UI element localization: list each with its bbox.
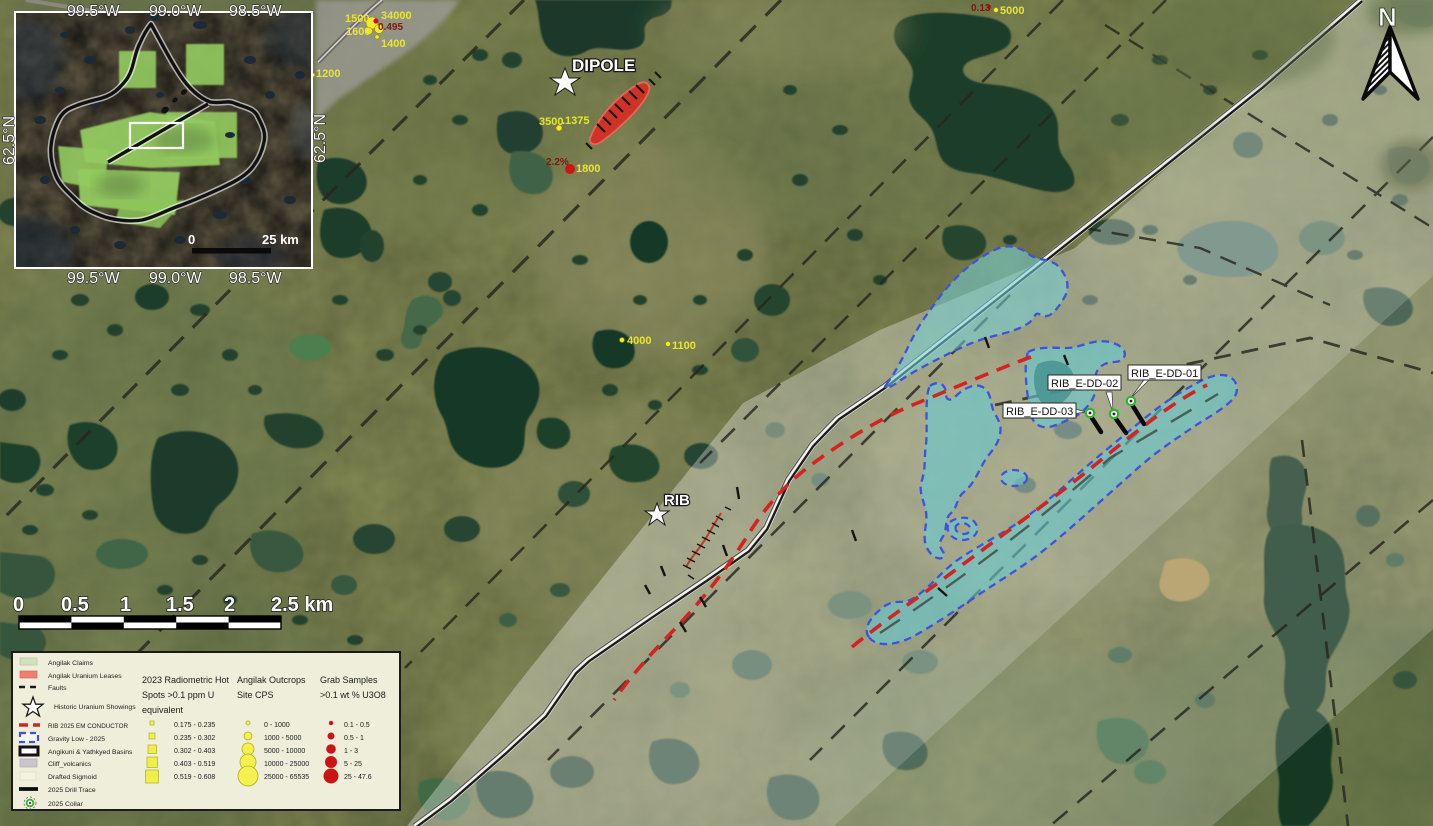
svg-text:Angilak Uranium Leases: Angilak Uranium Leases (48, 673, 122, 680)
svg-text:5 - 25: 5 - 25 (344, 761, 362, 768)
svg-text:2.5 km: 2.5 km (271, 594, 333, 616)
svg-text:2025 Drill Trace: 2025 Drill Trace (48, 787, 96, 794)
svg-text:Drafted Sigmoid: Drafted Sigmoid (48, 774, 97, 781)
svg-text:RIB: RIB (664, 492, 690, 509)
svg-text:98.5°W: 98.5°W (229, 3, 283, 20)
svg-text:Historic Uranium Showings: Historic Uranium Showings (54, 704, 136, 711)
svg-text:>0.1 wt % U3O8: >0.1 wt % U3O8 (320, 690, 386, 700)
svg-text:1400: 1400 (381, 38, 405, 50)
svg-text:N: N (1378, 2, 1397, 32)
svg-text:0.5: 0.5 (61, 594, 89, 616)
svg-text:0.175 - 0.235: 0.175 - 0.235 (174, 722, 215, 729)
svg-text:98.5°W: 98.5°W (229, 270, 283, 287)
svg-text:RIB_E-DD-02: RIB_E-DD-02 (1051, 378, 1118, 390)
svg-text:62.5°N: 62.5°N (1, 116, 18, 165)
svg-text:99.5°W: 99.5°W (67, 270, 121, 287)
svg-text:0.519 - 0.608: 0.519 - 0.608 (174, 774, 215, 781)
svg-text:Angilak Outcrops: Angilak Outcrops (237, 675, 306, 685)
svg-text:99.5°W: 99.5°W (67, 3, 121, 20)
svg-text:25000 - 65535: 25000 - 65535 (264, 774, 309, 781)
svg-text:0.302 - 0.403: 0.302 - 0.403 (174, 748, 215, 755)
svg-text:2025 Collar: 2025 Collar (48, 801, 83, 808)
svg-text:0: 0 (13, 594, 24, 616)
svg-text:5000: 5000 (1000, 5, 1024, 17)
svg-text:62.5°N: 62.5°N (312, 114, 329, 163)
svg-text:DIPOLE: DIPOLE (572, 56, 635, 75)
svg-text:Site CPS: Site CPS (237, 690, 274, 700)
svg-text:RIB 2025 EM CONDUCTOR: RIB 2025 EM CONDUCTOR (48, 723, 128, 730)
svg-text:1600: 1600 (346, 26, 370, 38)
svg-text:Angilak Claims: Angilak Claims (48, 660, 94, 667)
svg-text:Angikuni & Yathkyed Basins: Angikuni & Yathkyed Basins (48, 749, 133, 756)
svg-text:2: 2 (224, 594, 235, 616)
svg-text:34000: 34000 (381, 10, 412, 22)
svg-text:1000 - 5000: 1000 - 5000 (264, 735, 301, 742)
svg-text:RIB_E-DD-01: RIB_E-DD-01 (1131, 368, 1198, 380)
svg-text:Spots >0.1 ppm U: Spots >0.1 ppm U (142, 690, 214, 700)
svg-text:99.0°W: 99.0°W (149, 270, 203, 287)
svg-text:Faults: Faults (48, 685, 67, 692)
svg-text:1200: 1200 (316, 68, 340, 80)
svg-text:1 - 3: 1 - 3 (344, 748, 358, 755)
svg-text:10000 - 25000: 10000 - 25000 (264, 761, 309, 768)
svg-text:1: 1 (120, 594, 131, 616)
svg-text:Gravity Low - 2025: Gravity Low - 2025 (48, 736, 105, 743)
svg-text:0.403 - 0.519: 0.403 - 0.519 (174, 761, 215, 768)
svg-text:5000 - 10000: 5000 - 10000 (264, 748, 305, 755)
svg-text:99.0°W: 99.0°W (149, 3, 203, 20)
svg-text:0.235 - 0.302: 0.235 - 0.302 (174, 735, 215, 742)
svg-text:1100: 1100 (672, 340, 696, 352)
svg-text:0.13: 0.13 (971, 3, 991, 14)
svg-text:1800: 1800 (576, 163, 600, 175)
svg-text:0.495: 0.495 (378, 22, 403, 33)
svg-text:0.5 - 1: 0.5 - 1 (344, 735, 364, 742)
svg-text:equivalent: equivalent (142, 705, 184, 715)
svg-text:0.1 - 0.5: 0.1 - 0.5 (344, 722, 370, 729)
svg-text:3500: 3500 (539, 116, 563, 128)
svg-text:2.2%: 2.2% (546, 157, 569, 168)
svg-text:Cliff_volcanics: Cliff_volcanics (48, 761, 92, 768)
svg-text:25 - 47.6: 25 - 47.6 (344, 774, 372, 781)
svg-text:0: 0 (188, 232, 195, 247)
svg-text:2023 Radiometric Hot: 2023 Radiometric Hot (142, 675, 230, 685)
svg-text:4000: 4000 (627, 335, 651, 347)
svg-text:Grab Samples: Grab Samples (320, 675, 378, 685)
svg-text:RIB_E-DD-03: RIB_E-DD-03 (1006, 406, 1073, 418)
svg-text:1.5: 1.5 (166, 594, 194, 616)
svg-text:.1375: .1375 (562, 115, 590, 127)
svg-text:25 km: 25 km (262, 232, 299, 247)
svg-text:0 - 1000: 0 - 1000 (264, 722, 290, 729)
svg-text:1500: 1500 (345, 13, 369, 25)
